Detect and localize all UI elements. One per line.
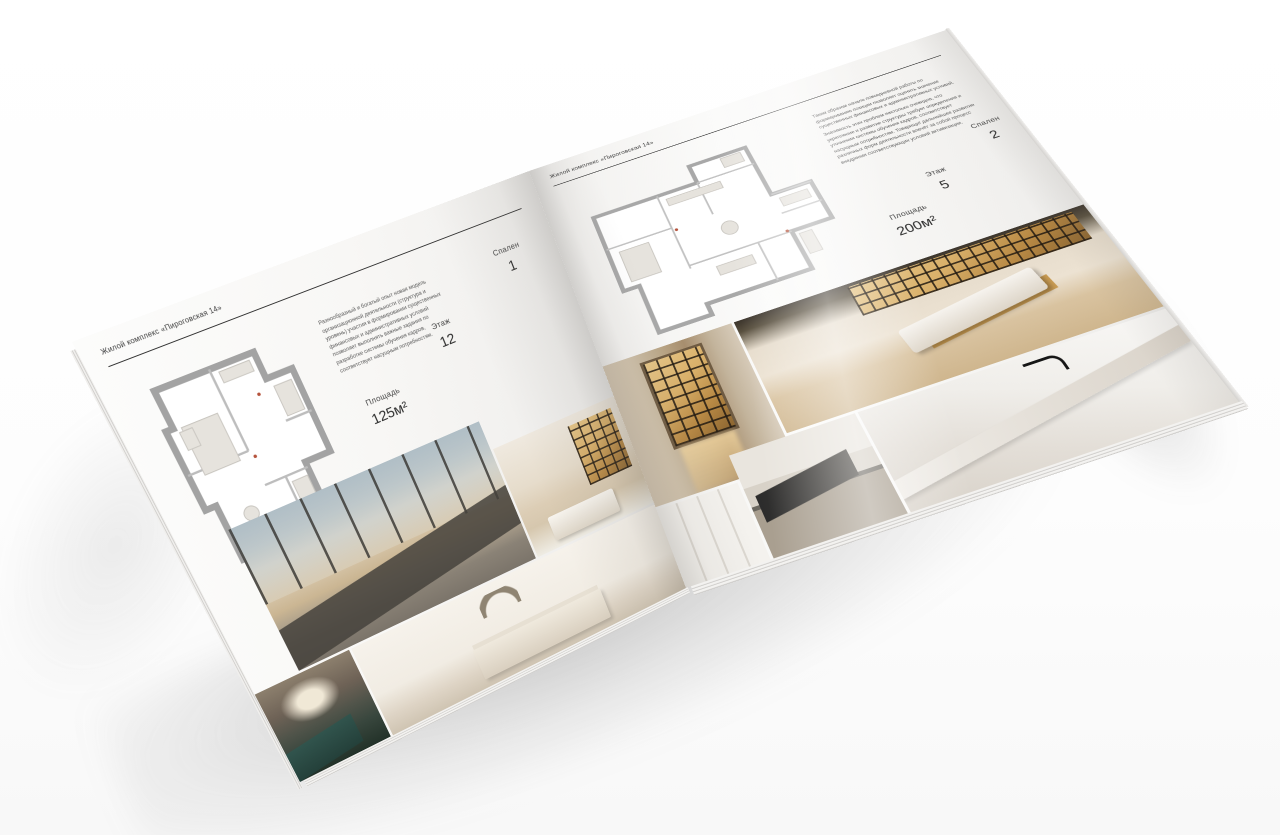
spec-bedrooms: Спален 1: [479, 235, 541, 284]
spec-area: Площадь 200м²: [873, 198, 955, 244]
brochure-mockup-scene: Жилой комплекс «Пироговская 14» Разнообр…: [0, 0, 1280, 835]
spec-area: Площадь 125м²: [352, 381, 423, 434]
spec-floor: Этаж 5: [909, 160, 974, 199]
